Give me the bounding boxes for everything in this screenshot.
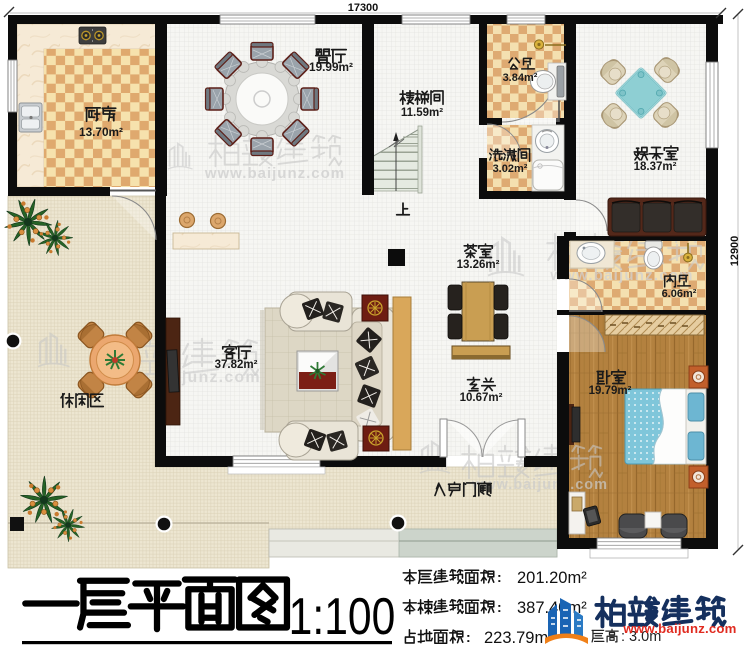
- svg-text:1:100: 1:100: [289, 588, 396, 646]
- svg-text:6.06m²: 6.06m²: [662, 288, 697, 300]
- svg-text:201.20m²: 201.20m²: [517, 569, 587, 587]
- svg-text::: :: [497, 569, 502, 585]
- svg-text:13.26m²: 13.26m²: [457, 259, 500, 271]
- svg-text:17300: 17300: [348, 2, 379, 14]
- svg-text:11.59m²: 11.59m²: [401, 107, 443, 119]
- svg-text::: :: [497, 599, 502, 615]
- svg-text:12900: 12900: [729, 236, 741, 267]
- svg-text:223.79m²: 223.79m²: [484, 629, 554, 647]
- svg-text:www.baijunz.com: www.baijunz.com: [622, 621, 736, 636]
- svg-text:www.baijunz.com: www.baijunz.com: [204, 165, 345, 182]
- svg-text:37.82m²: 37.82m²: [215, 359, 258, 371]
- svg-text:19.79m²: 19.79m²: [589, 385, 632, 397]
- svg-text:3.02m²: 3.02m²: [493, 163, 528, 175]
- svg-text::: :: [466, 629, 471, 645]
- svg-text:10.67m²: 10.67m²: [460, 392, 503, 404]
- svg-text:13.70m²: 13.70m²: [79, 125, 123, 139]
- svg-text:3.84m²: 3.84m²: [503, 72, 538, 84]
- svg-text:19.99m²: 19.99m²: [309, 60, 353, 74]
- svg-text:18.37m²: 18.37m²: [634, 161, 677, 173]
